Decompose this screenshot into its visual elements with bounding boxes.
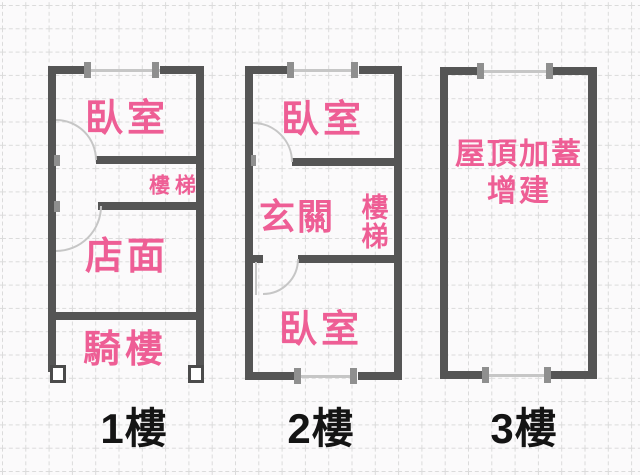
f2-bottom-window-jamb-right — [350, 368, 357, 384]
f2-foyer-label: 玄關 — [259, 199, 335, 235]
f3-left-wall — [440, 67, 448, 379]
f2-left-wall — [245, 66, 253, 380]
f2-bottom-window — [301, 375, 352, 378]
f2-foyer-door-leaf — [255, 262, 257, 295]
f1-stairs-partition-wall — [98, 202, 204, 210]
f3-top-wall-left — [440, 67, 478, 75]
f1-top-window-jamb-right — [152, 62, 159, 78]
f1-store-door-jamb — [54, 201, 60, 212]
f3-bottom-window-jamb-left — [482, 367, 489, 383]
f3-top-window — [483, 70, 548, 73]
f1-top-wall-right — [160, 66, 204, 74]
f1-right-wall — [196, 66, 204, 372]
f1-top-window — [86, 69, 160, 72]
f1-bedroom-label: 臥室 — [85, 100, 169, 138]
f2-top-window — [294, 69, 354, 72]
f2-stairs-label: 樓梯 — [359, 193, 386, 251]
f2-bedroom-partition-wall — [292, 158, 402, 166]
f3-rooftop-label: 屋頂加蓋 增建 — [455, 136, 583, 210]
f2-bottom-wall-left — [245, 372, 295, 380]
f2-top-wall-right — [359, 66, 402, 74]
f2-bedroom-door-jamb — [251, 155, 256, 166]
f1-arcade-pillar-right — [190, 367, 203, 382]
f1-left-wall — [48, 66, 56, 372]
f1-stairs-label: 樓梯 — [149, 176, 201, 197]
f1-floor-label: 1樓 — [100, 408, 167, 450]
f2-top-window-jamb-left — [287, 62, 294, 78]
f3-top-wall-right — [553, 67, 597, 75]
f3-bottom-wall-right — [551, 371, 597, 379]
f3-bottom-window — [488, 374, 545, 377]
f1-storefront-label: 店面 — [85, 238, 169, 276]
f3-top-window-jamb-left — [477, 63, 484, 79]
f2-top-wall-left — [245, 66, 288, 74]
f2-foyer-partition-wall — [298, 255, 402, 263]
floorplan-diagram: 臥室 樓梯 店面 騎樓 1樓 臥室 玄關 樓梯 臥室 2樓 屋頂加蓋 增建 3樓 — [0, 0, 640, 475]
f3-rooftop-label-line1: 屋頂加蓋 — [455, 136, 583, 173]
f2-floor-label: 2樓 — [287, 408, 354, 450]
f3-floor-label: 3樓 — [490, 408, 557, 450]
f2-bedroom-back-label: 臥室 — [279, 311, 363, 349]
f3-rooftop-label-line2: 增建 — [455, 173, 583, 210]
f1-bedroom-door-jamb — [54, 155, 60, 166]
f2-foyer-wall-stub — [245, 255, 263, 263]
f3-right-wall — [588, 67, 597, 379]
f1-arcade-partition-wall — [48, 312, 204, 320]
f1-arcade-pillar-left — [52, 367, 65, 382]
f2-bottom-window-jamb-left — [294, 368, 301, 384]
f2-right-wall — [394, 66, 402, 380]
f3-top-window-jamb-right — [546, 63, 553, 79]
f3-bottom-wall-left — [440, 371, 483, 379]
f1-top-window-jamb-left — [84, 62, 91, 78]
f2-bedroom-front-label: 臥室 — [281, 101, 365, 139]
f2-bottom-wall-right — [358, 372, 402, 380]
f1-top-wall-left — [48, 66, 86, 74]
f1-arcade-label: 騎樓 — [83, 331, 167, 369]
f3-bottom-window-jamb-right — [544, 367, 551, 383]
f1-bedroom-partition-wall — [96, 156, 204, 164]
f2-top-window-jamb-right — [351, 62, 358, 78]
